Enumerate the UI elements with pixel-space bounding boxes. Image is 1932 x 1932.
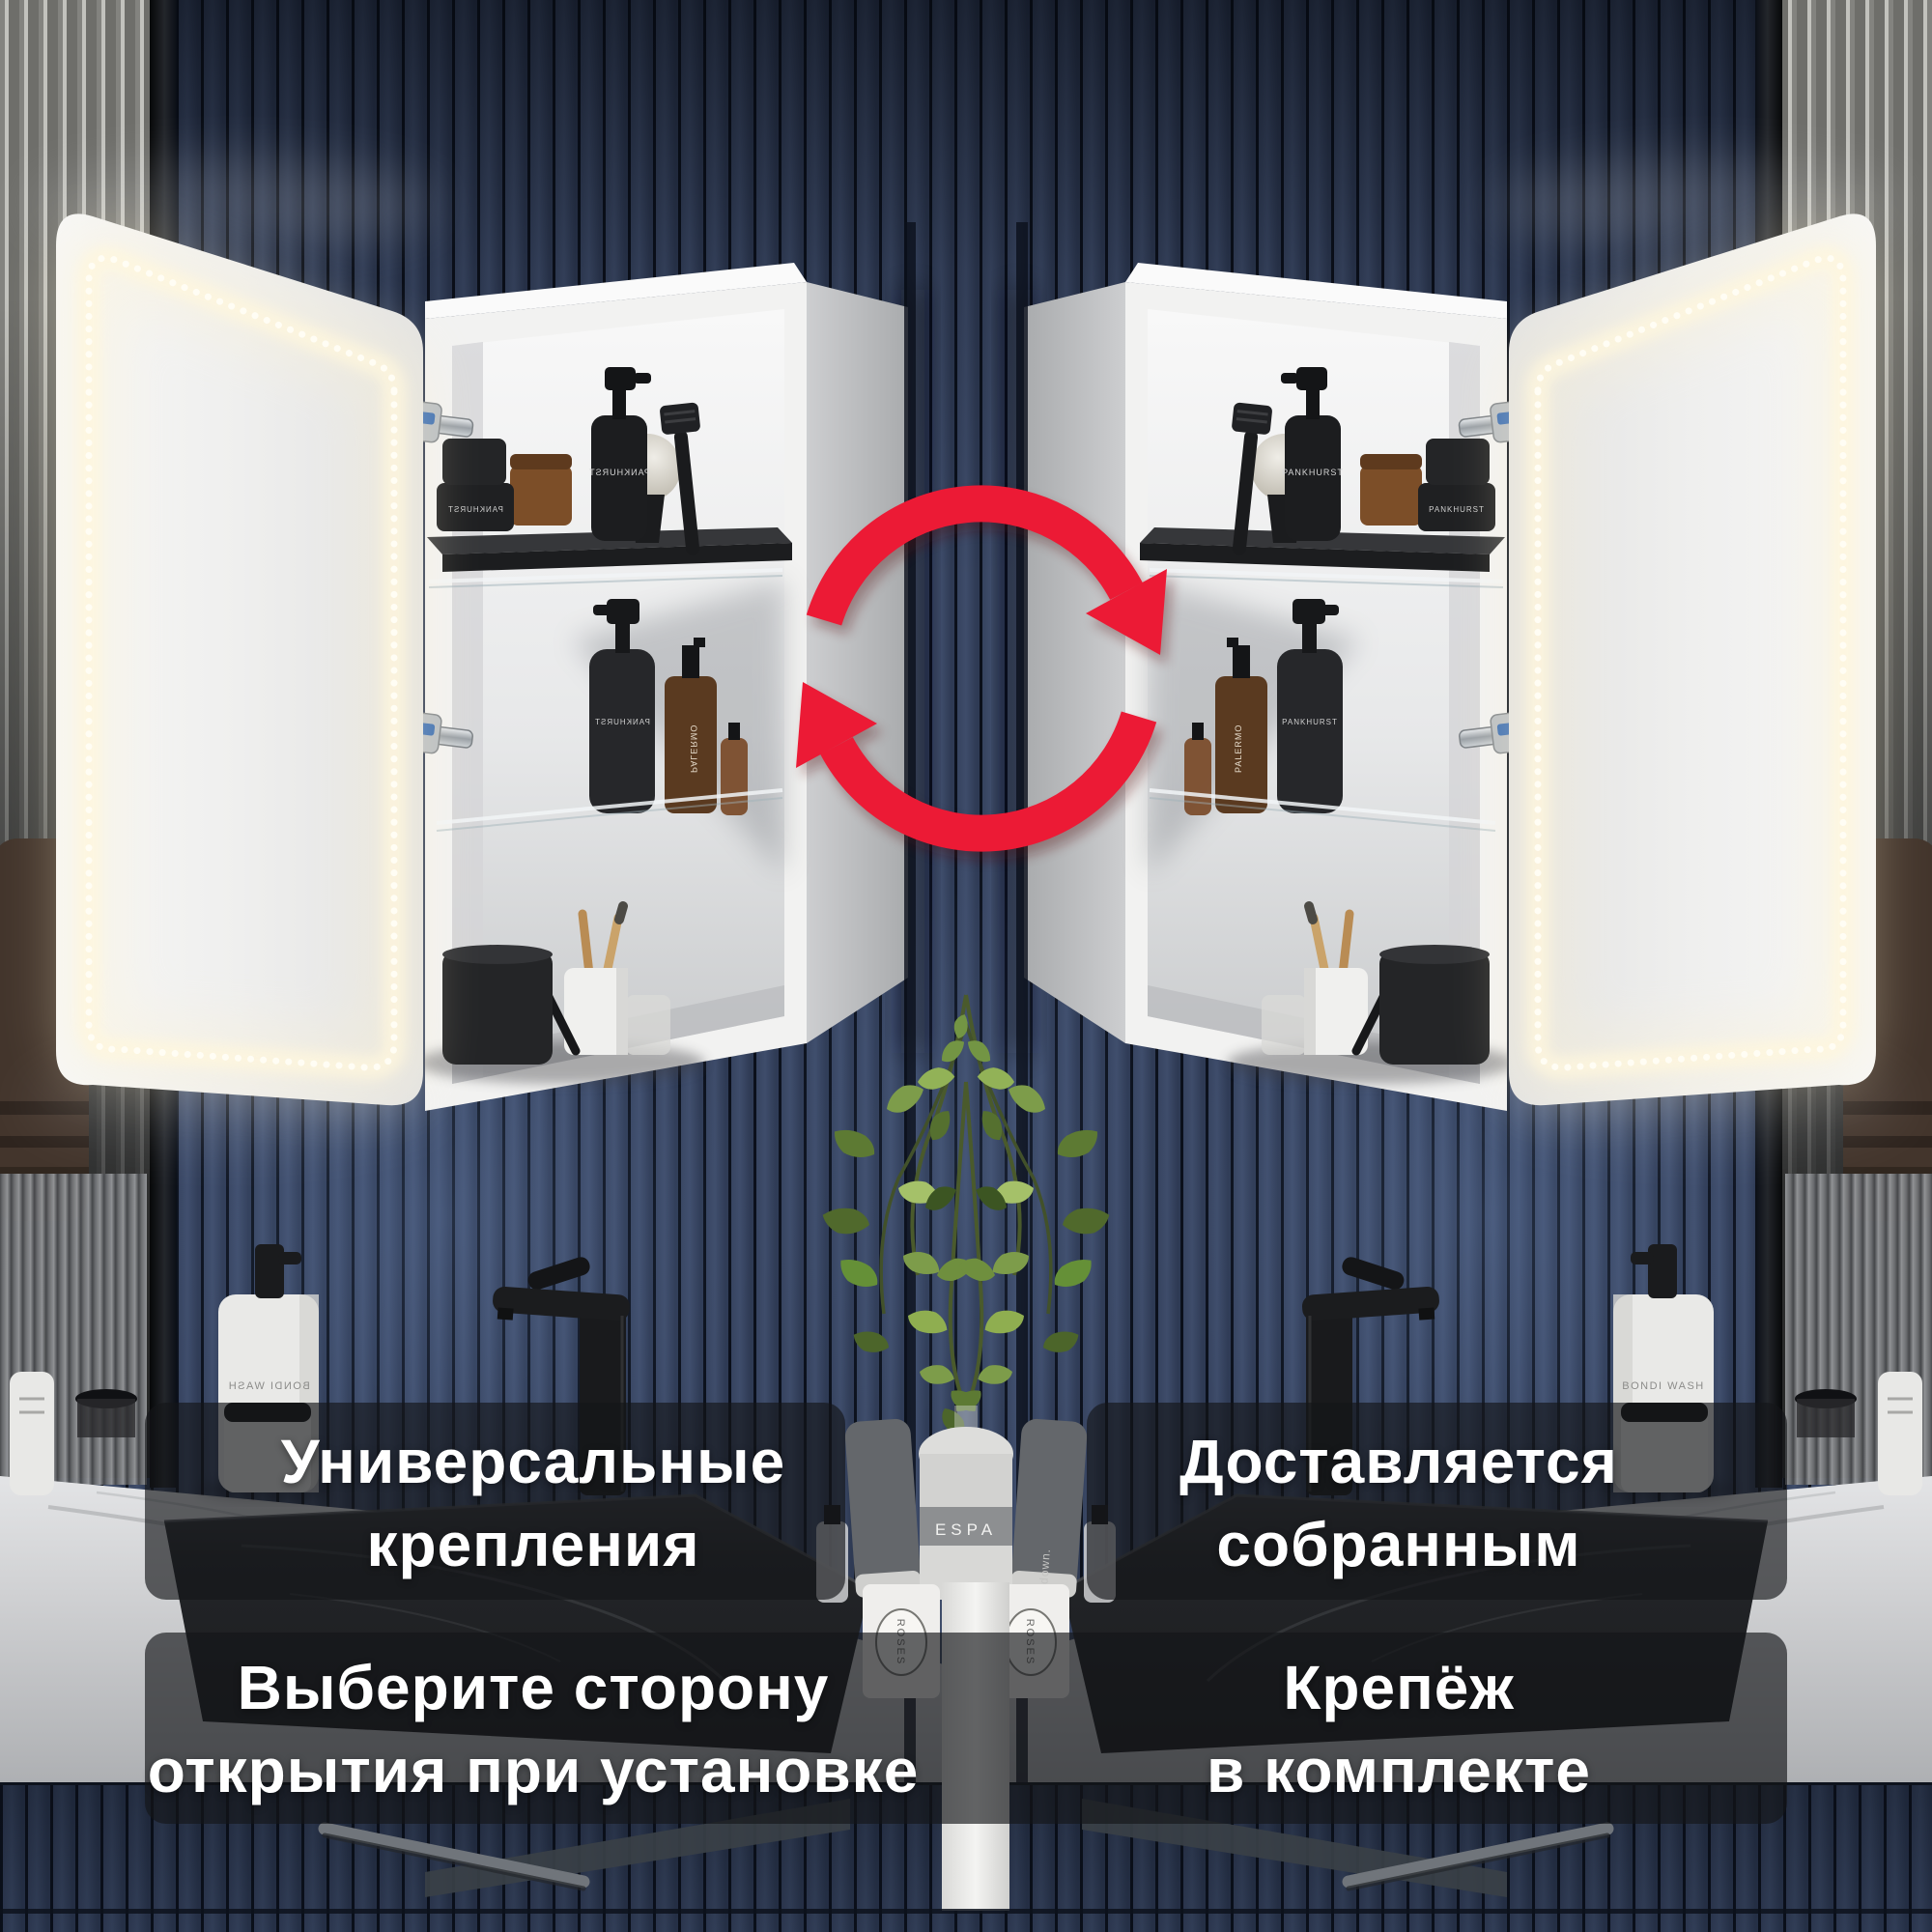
feature-line: крепления [147,1503,920,1586]
espa-jar: ESPA [919,1427,1013,1600]
bathroom-scene: PANKHURST [0,0,1932,1932]
feature-line: Крепёж [1012,1646,1785,1729]
counter-seam [0,1909,1932,1914]
feature-line: открытия при установке [147,1729,920,1812]
feature-text-universal-mounts: Универсальные крепления [147,1420,920,1586]
jar-band-label: ESPA [935,1520,997,1539]
feature-line: собранным [1012,1503,1785,1586]
feature-text-delivered-assembled: Доставляется собранным [1012,1420,1785,1586]
feature-line: Выберите сторону [147,1646,920,1729]
feature-line: Универсальные [147,1420,920,1503]
hanging-plant [820,995,1113,1441]
feature-text-choose-side: Выберите сторону открытия при установке [147,1646,920,1812]
feature-line: Доставляется [1012,1420,1785,1503]
feature-text-hardware-included: Крепёж в комплекте [1012,1646,1785,1812]
feature-line: в комплекте [1012,1729,1785,1812]
